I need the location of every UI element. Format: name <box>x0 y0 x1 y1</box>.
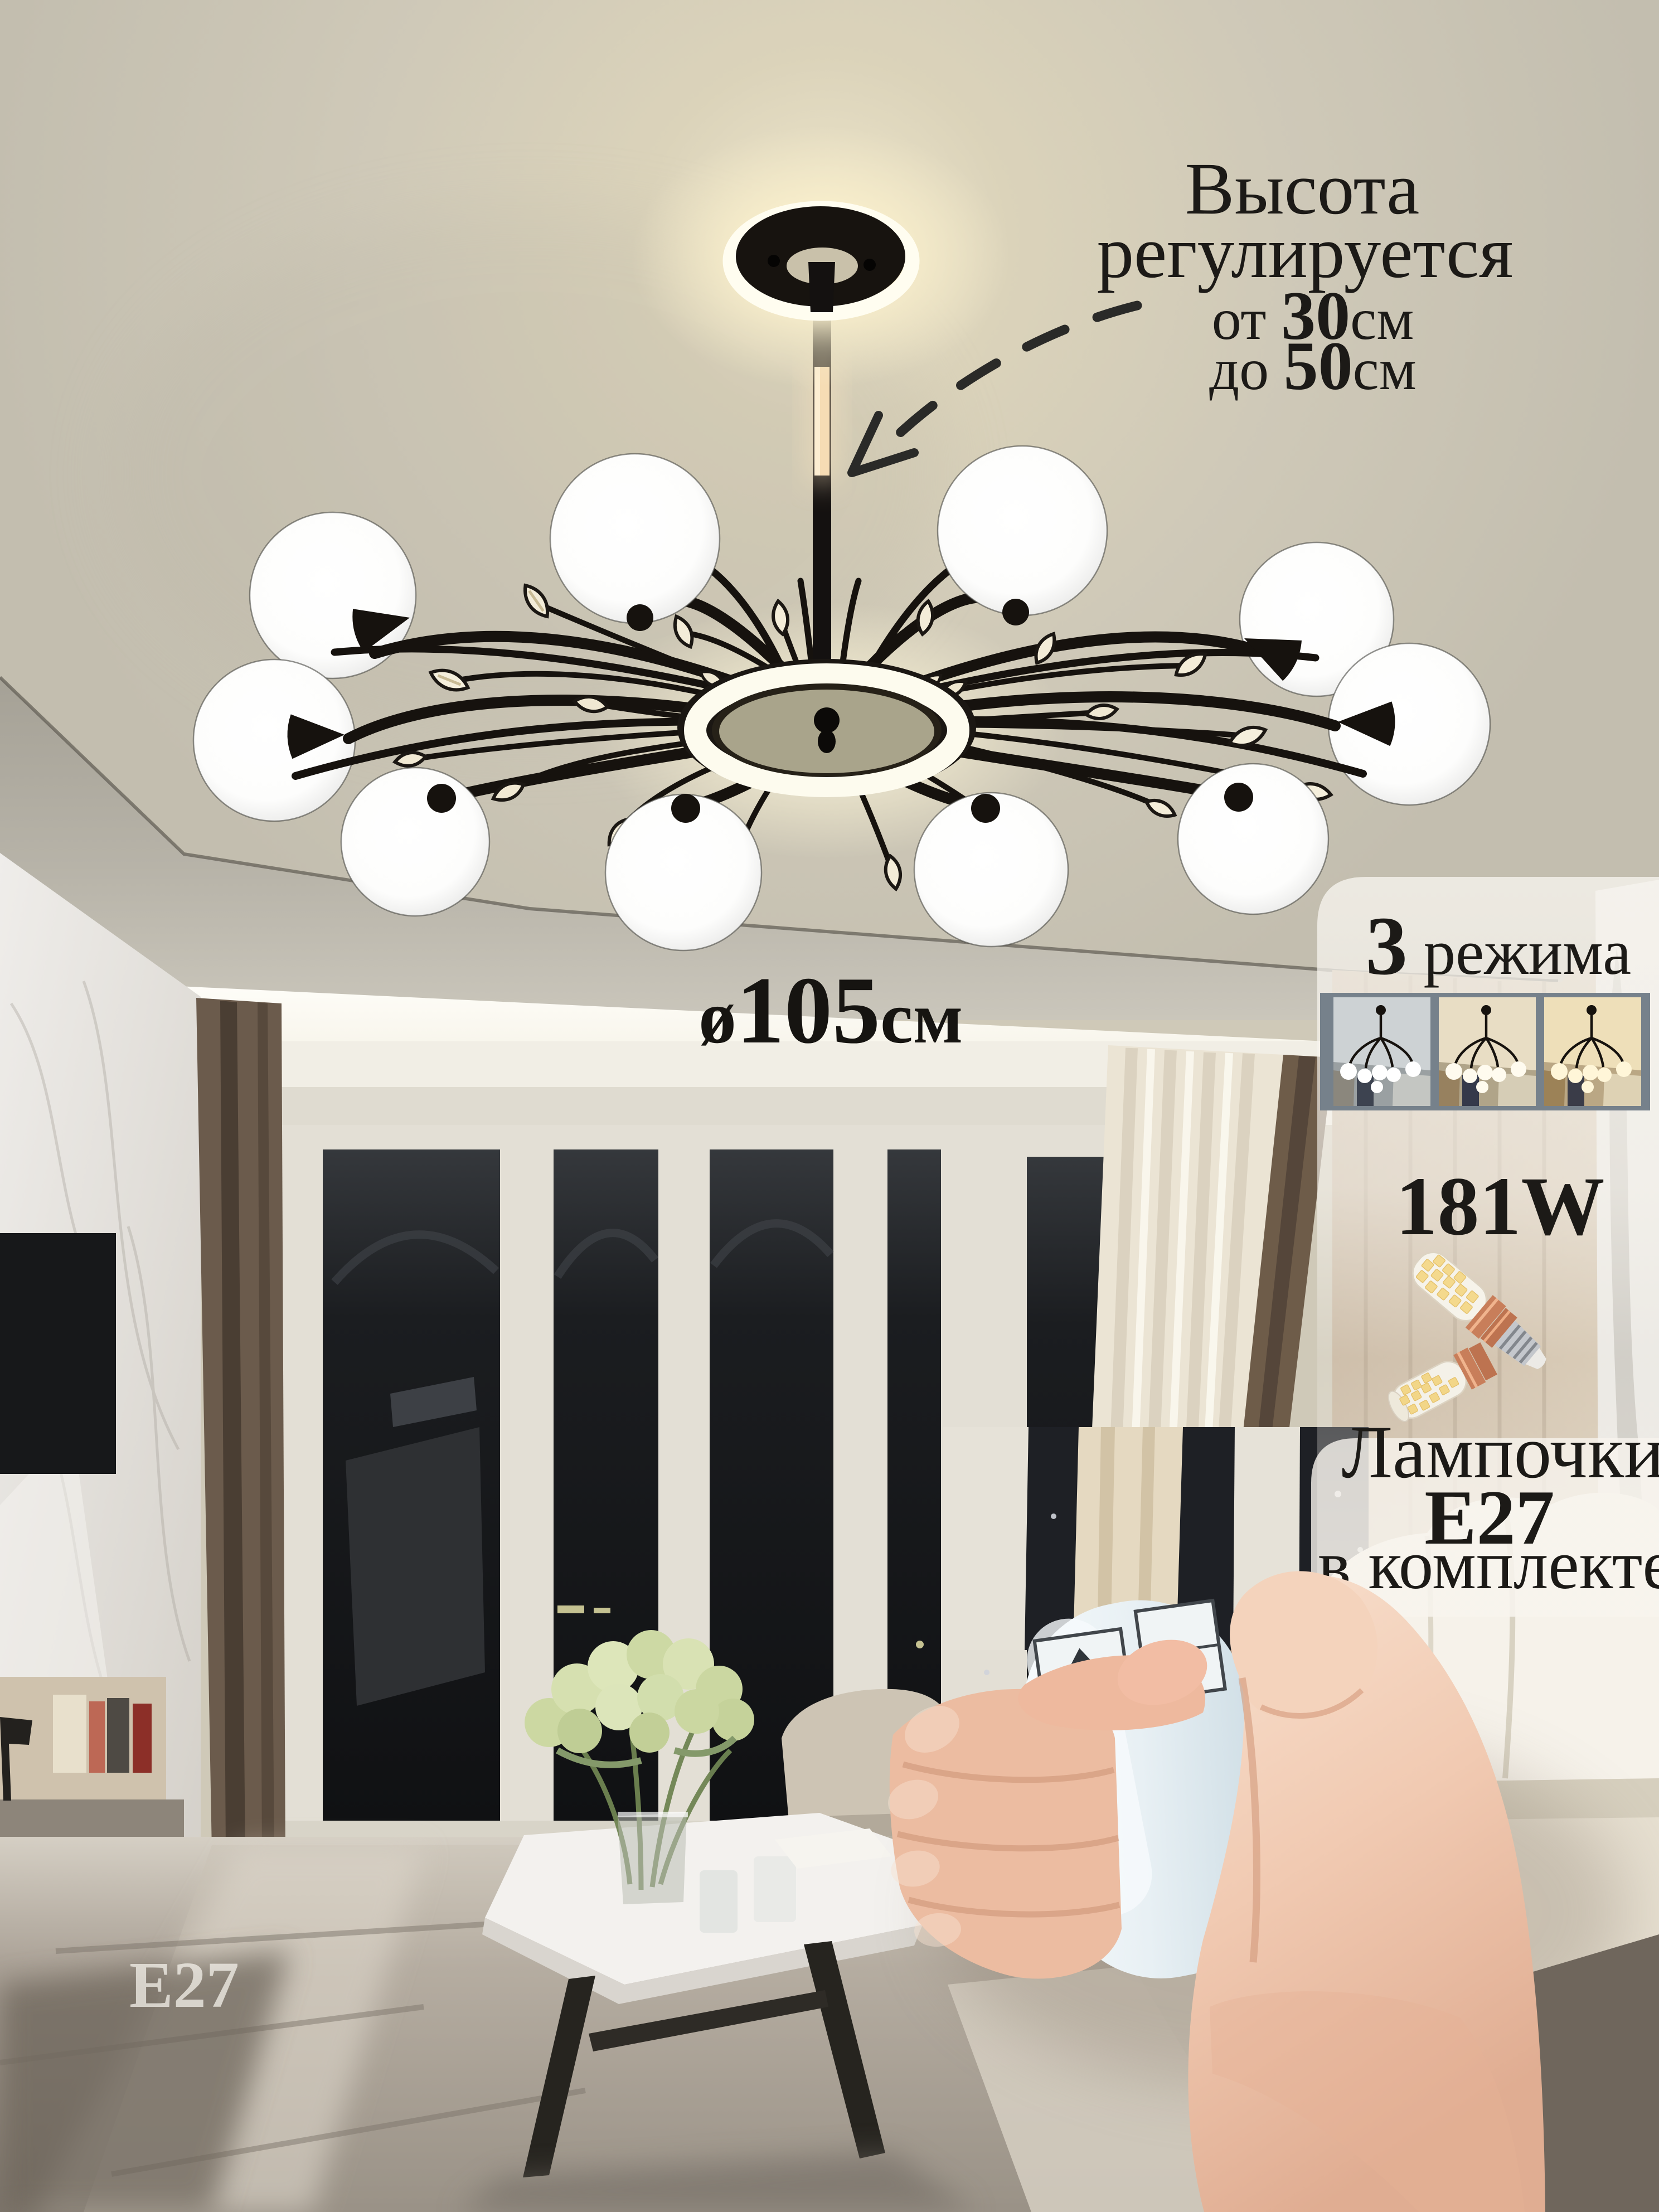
svg-text:Е27: Е27 <box>129 1948 239 2021</box>
svg-text:до 50см: до 50см <box>1209 328 1417 404</box>
svg-text:181W: 181W <box>1396 1160 1605 1253</box>
